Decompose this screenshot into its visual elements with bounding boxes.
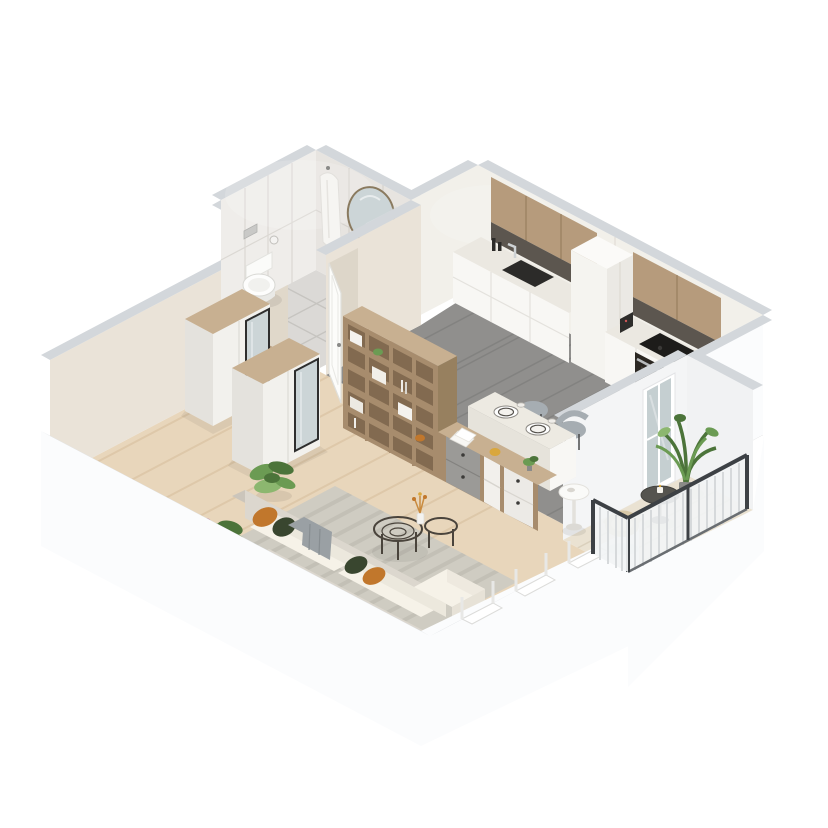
- shadow: [372, 542, 428, 562]
- isometric-scene: [0, 0, 828, 828]
- apartment-floorplan-render: [0, 0, 828, 828]
- plate-setting-2: [526, 423, 550, 435]
- cup: [548, 419, 556, 423]
- wardrobe-side: [232, 368, 263, 476]
- wardrobe-mirror: [295, 359, 318, 451]
- cup: [517, 403, 525, 407]
- tall-cabinet-front: [571, 250, 607, 381]
- door-handle: [337, 343, 341, 347]
- plate-setting-1: [494, 406, 518, 418]
- wardrobe-side: [185, 319, 213, 426]
- side-table-top: [559, 484, 589, 500]
- yellow-object: [490, 448, 501, 456]
- toilet-paper-holder: [270, 236, 278, 244]
